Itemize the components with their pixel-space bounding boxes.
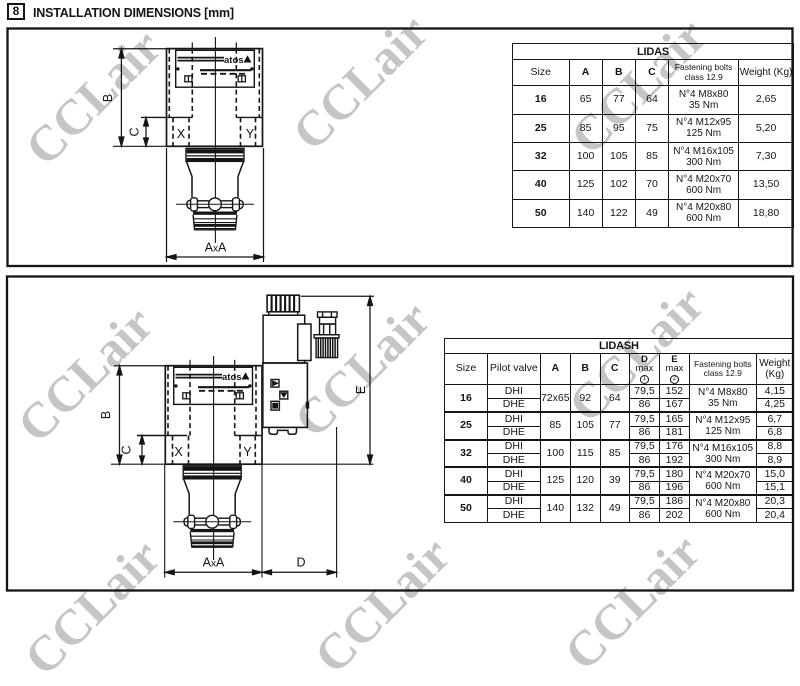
svg-text:AxA: AxA	[203, 556, 225, 570]
svg-text:B: B	[99, 411, 113, 419]
svg-text:atos: atos	[222, 372, 242, 383]
svg-text:Y: Y	[243, 445, 252, 459]
svg-text:atos: atos	[224, 55, 244, 66]
svg-text:E: E	[354, 386, 368, 394]
svg-text:C: C	[128, 127, 142, 136]
svg-text:X: X	[174, 445, 183, 459]
svg-text:AxA: AxA	[205, 241, 227, 255]
svg-text:D: D	[296, 556, 305, 570]
svg-text:C: C	[120, 445, 134, 454]
svg-text:Y: Y	[246, 127, 255, 141]
svg-text:X: X	[177, 127, 186, 141]
svg-text:B: B	[101, 94, 115, 102]
